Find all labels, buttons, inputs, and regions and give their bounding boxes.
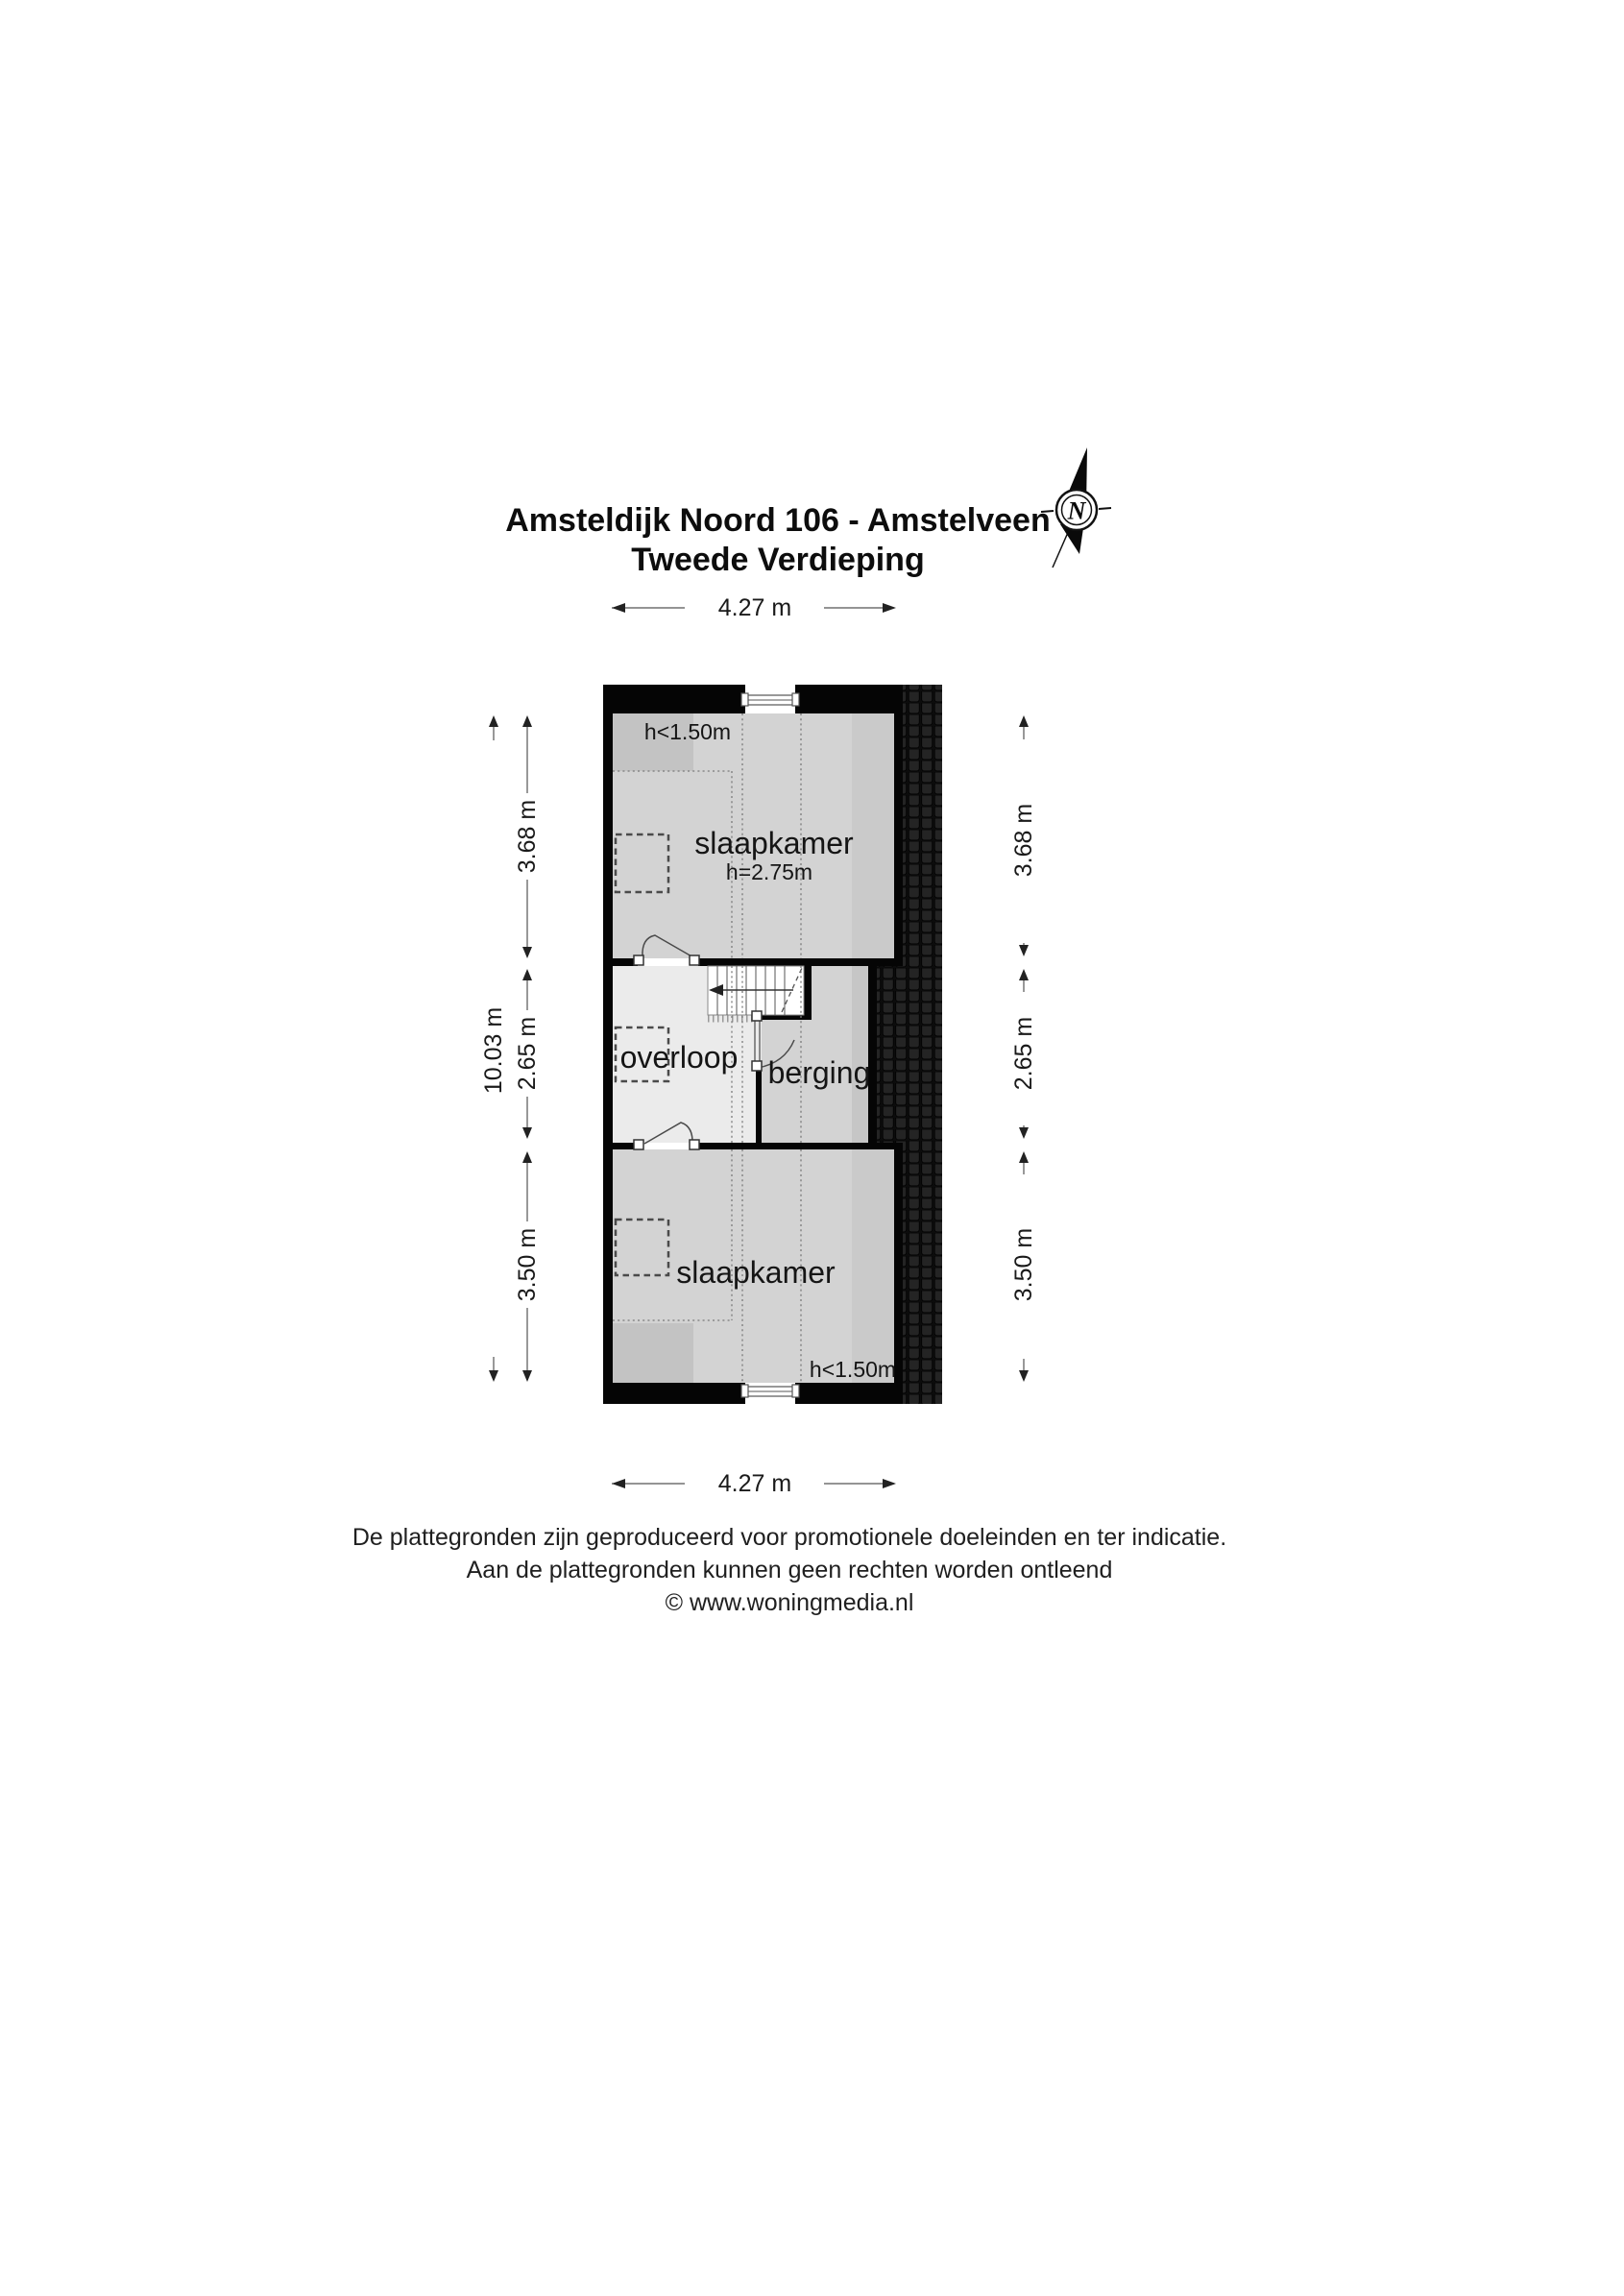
bottom-bedroom-low-band — [852, 1149, 896, 1383]
footer-disclaimer: De plattegronden zijn geproduceerd voor … — [352, 1524, 1226, 1616]
room-label-storage: berging — [768, 1055, 871, 1090]
wall-bottom-right — [795, 1383, 903, 1404]
wall-storage-left — [756, 1068, 762, 1143]
page-subtitle: Tweede Verdieping — [631, 542, 924, 578]
wall-right-top — [894, 713, 903, 966]
dimension-total-height: 10.03 m — [480, 715, 507, 1382]
top-bedroom-height-note: h=2.75m — [726, 859, 812, 884]
wall-bottom-left — [603, 1383, 745, 1404]
top-bedroom-low-band — [852, 713, 896, 958]
storage-low-band — [852, 966, 868, 1143]
dimension-top-width: 4.27 m — [612, 594, 896, 621]
room-label-top-bedroom: slaapkamer — [694, 826, 854, 860]
dimension-left-368: 3.68 m — [514, 715, 541, 958]
dimension-right-350: 3.50 m — [1010, 1151, 1037, 1382]
dimension-left-350: 3.50 m — [514, 1151, 541, 1382]
svg-text:10.03 m: 10.03 m — [480, 1007, 507, 1094]
dimension-right-265: 2.65 m — [1010, 969, 1037, 1139]
footer-line-1: De plattegronden zijn geproduceerd voor … — [352, 1524, 1226, 1551]
wall-a-right — [698, 958, 903, 966]
wall-stair-right — [804, 966, 812, 1020]
dimension-right-368: 3.68 m — [1010, 715, 1037, 956]
wall-right-middle — [868, 966, 877, 1143]
dimension-bottom-width: 4.27 m — [612, 1470, 896, 1497]
window-top — [741, 693, 799, 706]
wall-top-left — [603, 685, 745, 713]
svg-text:3.50 m: 3.50 m — [1010, 1228, 1037, 1301]
svg-text:2.65 m: 2.65 m — [1010, 1017, 1037, 1090]
room-label-bottom-bedroom: slaapkamer — [676, 1255, 836, 1290]
room-label-landing: overloop — [620, 1040, 739, 1075]
svg-text:4.27 m: 4.27 m — [718, 594, 791, 621]
dimension-left-265: 2.65 m — [514, 969, 541, 1139]
wall-b-right — [698, 1143, 903, 1149]
floorplan-page: Amsteldijk Noord 106 - Amstelveen Tweede… — [0, 0, 1624, 2296]
floor-plan-svg: Amsteldijk Noord 106 - Amstelveen Tweede… — [0, 0, 1624, 2296]
svg-text:3.68 m: 3.68 m — [1010, 804, 1037, 877]
footer-line-2: Aan de plattegronden kunnen geen rechten… — [467, 1557, 1113, 1583]
top-bedroom-low-note: h<1.50m — [644, 719, 731, 744]
footer-copyright: © www.woningmedia.nl — [666, 1589, 914, 1616]
bottom-bedroom-low-zone — [613, 1323, 693, 1383]
svg-text:2.65 m: 2.65 m — [514, 1017, 541, 1090]
compass-north-label: N — [1067, 497, 1087, 525]
compass-icon: N — [1041, 447, 1111, 568]
bottom-bedroom-low-note: h<1.50m — [810, 1357, 896, 1382]
window-bottom — [741, 1385, 799, 1397]
svg-text:4.27 m: 4.27 m — [718, 1470, 791, 1497]
wall-left — [603, 685, 613, 1404]
svg-text:3.50 m: 3.50 m — [514, 1228, 541, 1301]
page-title: Amsteldijk Noord 106 - Amstelveen — [505, 502, 1050, 539]
svg-text:3.68 m: 3.68 m — [514, 800, 541, 873]
wall-top-right — [795, 685, 903, 713]
wall-right-bottom — [894, 1143, 903, 1383]
